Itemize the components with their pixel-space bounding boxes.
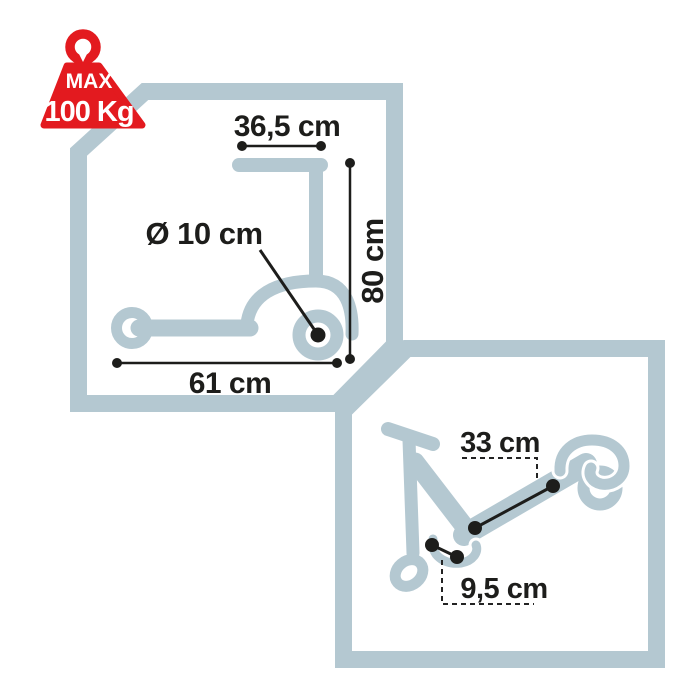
deck-length-label: 33 cm bbox=[460, 427, 540, 459]
badge-weight-label: 100 Kg bbox=[44, 96, 133, 128]
deck-length-line bbox=[475, 486, 553, 528]
dimension-length: 61 cm bbox=[112, 358, 342, 400]
scooter-side-view bbox=[117, 165, 353, 354]
measure-dot bbox=[468, 521, 482, 535]
folded-downtube bbox=[415, 462, 468, 531]
dimension-deck-width: 9,5 cm bbox=[425, 538, 548, 605]
folded-front-wheel bbox=[390, 554, 428, 592]
measure-dot bbox=[345, 158, 355, 168]
badge-max-label: MAX bbox=[66, 70, 113, 93]
dimension-handlebar-width: 36,5 cm bbox=[234, 110, 341, 151]
deck-width-label: 9,5 cm bbox=[460, 573, 547, 605]
measure-dot bbox=[332, 358, 342, 368]
height-label: 80 cm bbox=[355, 218, 390, 303]
measure-dot bbox=[425, 538, 439, 552]
diagram-svg: MAX 100 Kg 36,5 cm 80 cm Ø 10 cm 61 cm bbox=[0, 0, 700, 700]
measure-dot bbox=[546, 479, 560, 493]
measure-dot bbox=[112, 358, 122, 368]
measure-dot bbox=[237, 141, 247, 151]
length-label: 61 cm bbox=[189, 367, 272, 400]
handlebar-width-label: 36,5 cm bbox=[234, 110, 341, 143]
measure-dot bbox=[450, 550, 464, 564]
max-weight-badge: MAX 100 Kg bbox=[44, 34, 142, 128]
scooter-dimensions-infographic: MAX 100 Kg 36,5 cm 80 cm Ø 10 cm 61 cm bbox=[0, 0, 700, 700]
wheel-hub-dot bbox=[311, 328, 326, 343]
measure-dot bbox=[345, 354, 355, 364]
measure-dot bbox=[316, 141, 326, 151]
deck-length-dashed-leader bbox=[462, 458, 537, 478]
wheel-diameter-label: Ø 10 cm bbox=[145, 216, 262, 251]
